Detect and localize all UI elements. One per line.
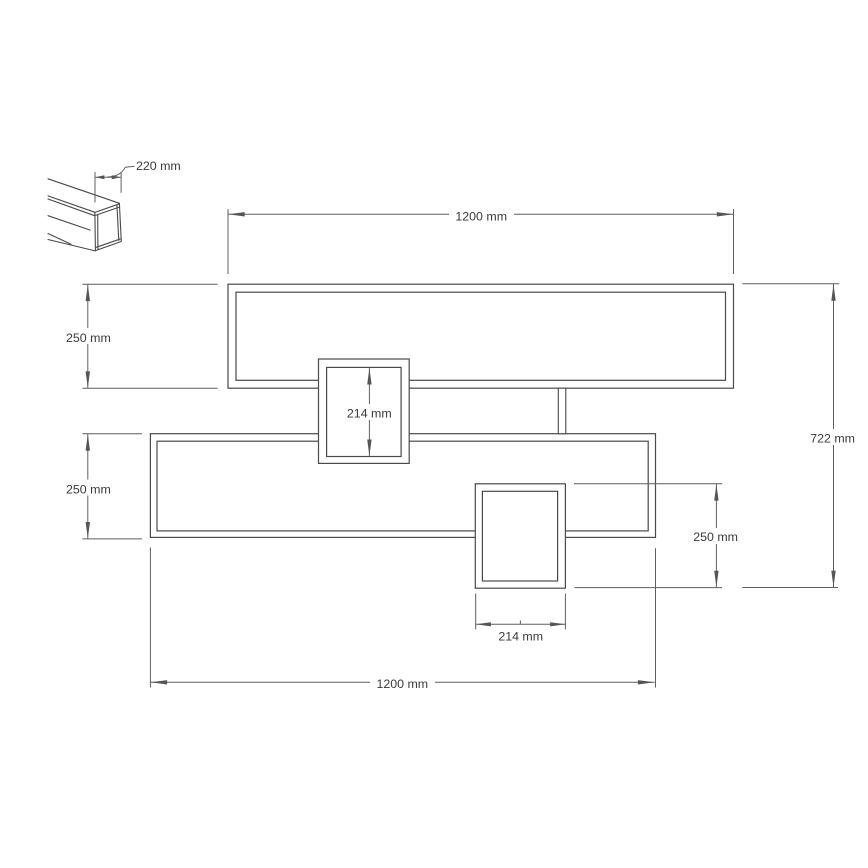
svg-text:250 mm: 250 mm (693, 530, 738, 544)
svg-text:250 mm: 250 mm (66, 331, 111, 345)
svg-text:214 mm: 214 mm (347, 406, 392, 420)
svg-text:220 mm: 220 mm (136, 159, 181, 173)
svg-text:1200 mm: 1200 mm (455, 209, 507, 223)
svg-text:214 mm: 214 mm (498, 630, 543, 644)
svg-text:1200 mm: 1200 mm (376, 677, 428, 691)
svg-text:722 mm: 722 mm (810, 431, 855, 445)
svg-text:250 mm: 250 mm (66, 483, 111, 497)
